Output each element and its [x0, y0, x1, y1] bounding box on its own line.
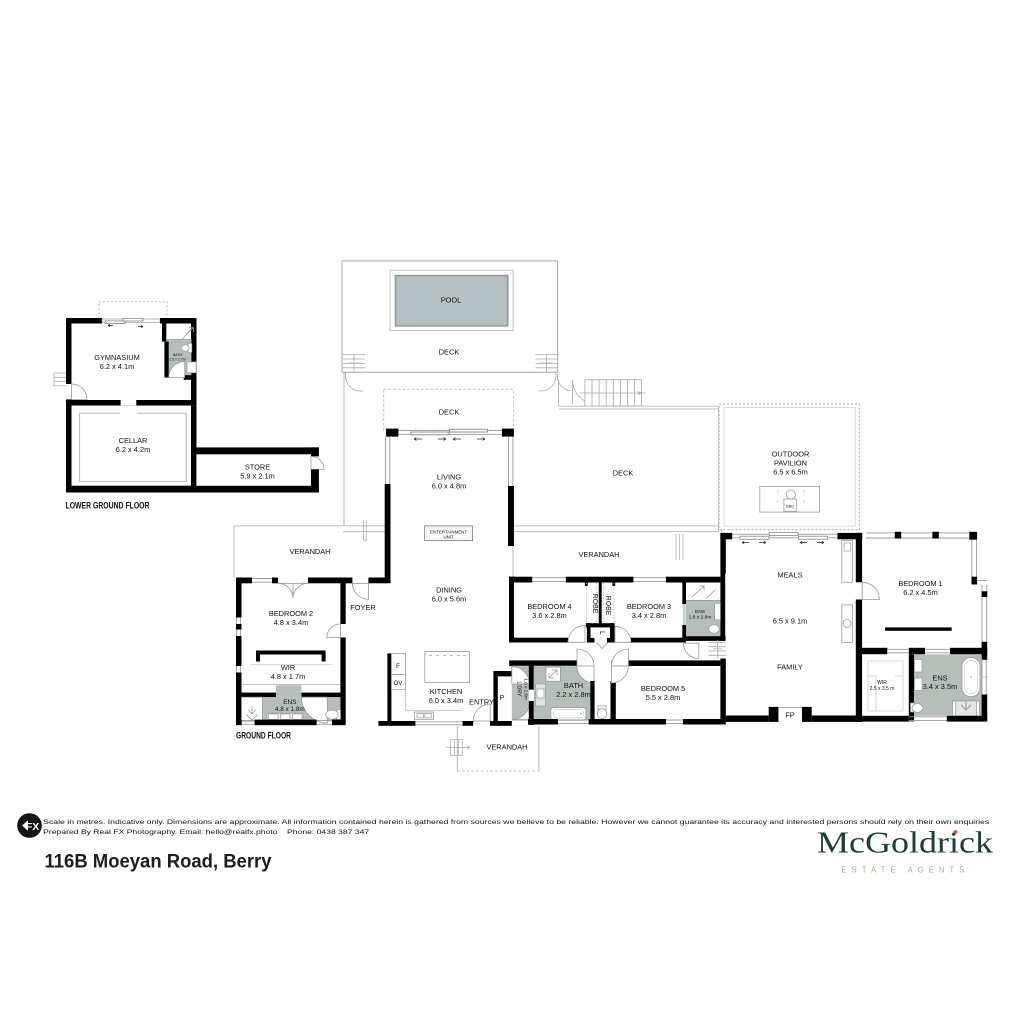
svg-text:STORE: STORE — [245, 463, 270, 472]
svg-text:ENS: ENS — [695, 609, 706, 615]
svg-text:5.9 x 2.1m: 5.9 x 2.1m — [240, 472, 275, 481]
svg-text:GROUND FLOOR: GROUND FLOOR — [236, 731, 291, 741]
svg-text:Prepared By Real FX Photograph: Prepared By Real FX Photography. Email: … — [43, 829, 369, 836]
svg-text:ROBE: ROBE — [591, 594, 598, 614]
svg-text:1.8 x 2.8m: 1.8 x 2.8m — [689, 615, 712, 621]
svg-text:3.4 x 2.8m: 3.4 x 2.8m — [632, 611, 667, 620]
svg-text:UNIT: UNIT — [443, 535, 454, 540]
svg-text:6.2 x 4.2m: 6.2 x 4.2m — [116, 445, 151, 454]
svg-text:DECK: DECK — [439, 348, 460, 357]
svg-text:BEDROOM 5: BEDROOM 5 — [641, 684, 685, 693]
svg-text:6.2 x 4.5m: 6.2 x 4.5m — [903, 588, 938, 597]
svg-text:WIR: WIR — [281, 663, 295, 672]
svg-text:6.0 x 4.8m: 6.0 x 4.8m — [432, 482, 467, 491]
svg-text:L: L — [598, 631, 605, 635]
svg-text:CELLAR: CELLAR — [119, 436, 148, 445]
svg-text:6.0 x 5.6m: 6.0 x 5.6m — [432, 595, 467, 604]
svg-text:PAVILION: PAVILION — [774, 459, 807, 468]
svg-text:OV: OV — [394, 681, 403, 687]
svg-text:6.2 x 4.1m: 6.2 x 4.1m — [100, 362, 135, 371]
svg-text:BEDROOM 3: BEDROOM 3 — [627, 602, 671, 611]
svg-text:LIVING: LIVING — [437, 473, 461, 482]
svg-text:KITCHEN: KITCHEN — [430, 687, 462, 696]
svg-text:VERANDAH: VERANDAH — [486, 743, 527, 752]
svg-text:2.2 x 2.8m: 2.2 x 2.8m — [556, 690, 591, 699]
svg-text:F: F — [396, 664, 400, 670]
svg-text:GYMNASIUM: GYMNASIUM — [94, 353, 140, 362]
svg-text:BEDROOM 2: BEDROOM 2 — [269, 609, 313, 618]
svg-text:MEALS: MEALS — [777, 571, 802, 580]
svg-text:ROBE: ROBE — [604, 596, 611, 616]
svg-text:ENS: ENS — [283, 699, 296, 706]
svg-text:6.0 x 3.4m: 6.0 x 3.4m — [429, 696, 464, 705]
svg-text:P: P — [500, 695, 505, 702]
svg-text:BATH: BATH — [173, 353, 183, 357]
svg-text:3.6 x 2.8m: 3.6 x 2.8m — [532, 611, 567, 620]
svg-text:1.5 x 2.7m: 1.5 x 2.7m — [169, 358, 186, 362]
svg-text:DECK: DECK — [613, 469, 634, 478]
svg-text:BATH: BATH — [564, 681, 583, 690]
svg-text:VERANDAH: VERANDAH — [289, 547, 330, 556]
svg-text:2.5 x 3.5 m: 2.5 x 3.5 m — [870, 686, 895, 692]
svg-text:BEDROOM 4: BEDROOM 4 — [527, 602, 571, 611]
svg-text:1.6 x 2.8m: 1.6 x 2.8m — [524, 678, 529, 700]
svg-text:BBQ: BBQ — [786, 505, 794, 509]
svg-text:4.8 x 3.4m: 4.8 x 3.4m — [274, 618, 309, 627]
svg-text:DECK: DECK — [439, 408, 460, 417]
svg-text:ESTATE AGENTS: ESTATE AGENTS — [842, 866, 970, 875]
svg-text:POOL: POOL — [441, 296, 462, 305]
svg-text:BEDROOM 1: BEDROOM 1 — [898, 579, 942, 588]
svg-text:4.8 x 1.7m: 4.8 x 1.7m — [271, 672, 306, 681]
svg-text:3.4 x 3.5m: 3.4 x 3.5m — [923, 682, 958, 691]
svg-text:LOWER GROUND FLOOR: LOWER GROUND FLOOR — [66, 501, 151, 511]
svg-text:FOYER: FOYER — [350, 603, 375, 612]
svg-text:L'DRY: L'DRY — [516, 681, 522, 697]
svg-text:DINING: DINING — [436, 586, 462, 595]
svg-text:OUTDOOR: OUTDOOR — [772, 450, 810, 459]
svg-text:McGoldrick: McGoldrick — [817, 825, 994, 860]
svg-text:FX: FX — [26, 821, 39, 833]
svg-text:4.8 x 1.8m: 4.8 x 1.8m — [275, 706, 305, 713]
svg-text:6.5 x 9.1m: 6.5 x 9.1m — [773, 617, 808, 626]
svg-text:6.5 x 6.5m: 6.5 x 6.5m — [773, 468, 808, 477]
svg-text:5.5 x 2.8m: 5.5 x 2.8m — [646, 693, 681, 702]
svg-text:116B Moeyan Road, Berry: 116B Moeyan Road, Berry — [45, 851, 272, 873]
svg-text:FAMILY: FAMILY — [777, 663, 803, 672]
svg-text:VERANDAH: VERANDAH — [578, 550, 619, 559]
svg-text:FP: FP — [785, 711, 795, 720]
